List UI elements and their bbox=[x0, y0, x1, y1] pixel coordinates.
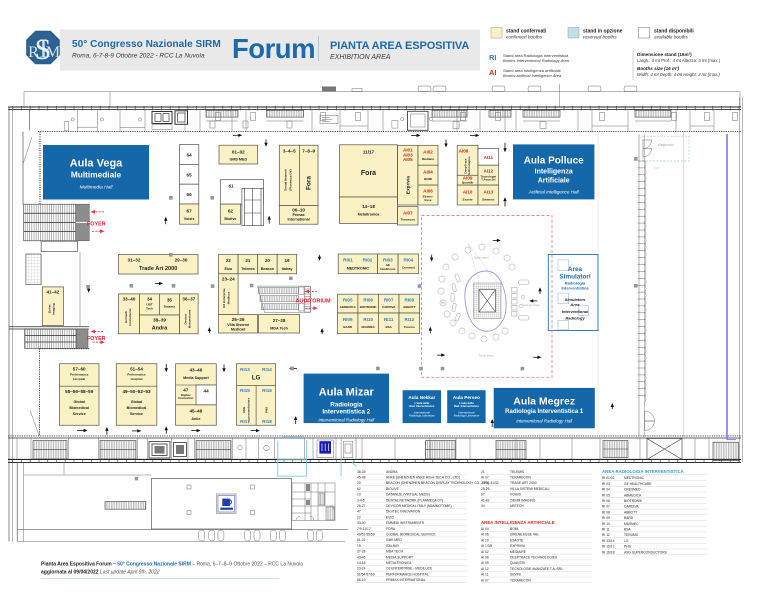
svg-text:FORA: FORA bbox=[386, 527, 396, 531]
svg-text:Biomedical: Biomedical bbox=[127, 406, 147, 410]
svg-text:BSA: BSA bbox=[624, 528, 631, 532]
svg-text:Artificial Intelligence Hall: Artificial Intelligence Hall bbox=[528, 190, 580, 195]
svg-text:DATAWIZE (VIRTUAL MEDS): DATAWIZE (VIRTUAL MEDS) bbox=[386, 493, 430, 497]
svg-text:Cresmed: Cresmed bbox=[402, 266, 415, 270]
svg-text:Area: Area bbox=[568, 266, 583, 273]
svg-text:62: 62 bbox=[357, 487, 361, 491]
svg-text:RI06: RI06 bbox=[363, 298, 373, 303]
svg-text:Esaote: Esaote bbox=[463, 198, 473, 202]
svg-text:Biomedical: Biomedical bbox=[69, 406, 89, 410]
svg-text:AI12: AI12 bbox=[483, 169, 493, 174]
svg-text:Booths size (16 m²): Booths size (16 m²) bbox=[637, 66, 680, 71]
svg-text:Booths Interventional Radiolog: Booths Interventional Radiology Area bbox=[503, 58, 570, 63]
svg-text:PHS: PHS bbox=[624, 545, 632, 549]
svg-text:Metaltronica: Metaltronica bbox=[358, 213, 381, 217]
svg-text:RI15: RI15 bbox=[240, 388, 250, 393]
svg-text:14-18: 14-18 bbox=[357, 561, 366, 565]
svg-text:AI 06: AI 06 bbox=[481, 533, 489, 537]
svg-text:EIRENE ESSE VAL: EIRENE ESSE VAL bbox=[510, 533, 539, 537]
svg-text:57–60: 57–60 bbox=[73, 367, 86, 372]
svg-text:45-48: 45-48 bbox=[357, 476, 366, 480]
svg-text:RI02: RI02 bbox=[363, 258, 373, 263]
svg-text:29/30-31/32: 29/30-31/32 bbox=[481, 481, 499, 485]
svg-text:(Planmeca OY): (Planmeca OY) bbox=[289, 169, 293, 190]
svg-text:3-4-5: 3-4-5 bbox=[357, 498, 365, 502]
svg-text:RI 01/02: RI 01/02 bbox=[602, 476, 615, 480]
svg-text:62: 62 bbox=[228, 209, 234, 214]
svg-text:PHS: PHS bbox=[265, 407, 269, 413]
svg-text:RI 09: RI 09 bbox=[602, 516, 610, 520]
svg-text:AI 11: AI 11 bbox=[481, 573, 489, 577]
svg-text:Media Support: Media Support bbox=[183, 376, 209, 380]
svg-text:Global: Global bbox=[73, 400, 84, 404]
svg-text:ZIEHM IMAGING: ZIEHM IMAGING bbox=[510, 498, 536, 502]
svg-text:available booths: available booths bbox=[654, 35, 689, 40]
svg-text:22: 22 bbox=[226, 258, 232, 263]
svg-text:26-27: 26-27 bbox=[357, 504, 366, 508]
svg-text:31–32: 31–32 bbox=[128, 258, 141, 263]
svg-text:MASMEC: MASMEC bbox=[362, 325, 376, 329]
svg-text:Andra: Andra bbox=[152, 326, 169, 332]
svg-text:49–50–52–53: 49–50–52–53 bbox=[122, 389, 151, 394]
svg-text:MEDTRONIC: MEDTRONIC bbox=[624, 476, 645, 480]
svg-text:METALTRONICA: METALTRONICA bbox=[386, 561, 412, 565]
svg-text:AI 10: AI 10 bbox=[481, 538, 489, 542]
svg-text:TERARECON: TERARECON bbox=[510, 578, 531, 582]
svg-text:Bar: Bar bbox=[441, 301, 446, 305]
svg-text:Healthcare: Healthcare bbox=[380, 267, 396, 271]
svg-text:Width: 4 mt Depth: 4 mt He: Width: 4 mt Depth: 4 mt Height: 3 mt (ma… bbox=[637, 72, 720, 77]
svg-text:ASG: ASG bbox=[242, 406, 246, 413]
svg-text:RI 16/18: RI 16/18 bbox=[602, 550, 615, 554]
svg-text:TRADE ART 2000: TRADE ART 2000 bbox=[510, 481, 537, 485]
svg-text:Fora: Fora bbox=[361, 170, 376, 177]
svg-text:reserved booths: reserved booths bbox=[583, 35, 617, 40]
svg-text:Artificiale: Artificiale bbox=[538, 178, 570, 185]
svg-text:AI 08: AI 08 bbox=[481, 556, 489, 560]
svg-text:Anke: Anke bbox=[191, 417, 200, 421]
svg-text:Aula Megrez: Aula Megrez bbox=[513, 396, 575, 408]
svg-text:Villa Sistemi: Villa Sistemi bbox=[227, 323, 249, 327]
svg-text:RI09: RI09 bbox=[343, 317, 353, 322]
svg-text:Instruments: Instruments bbox=[128, 308, 132, 326]
svg-text:RI18: RI18 bbox=[262, 419, 272, 424]
svg-text:33–40: 33–40 bbox=[123, 297, 136, 302]
svg-text:Mediaire: Mediaire bbox=[422, 157, 435, 161]
svg-text:Pianta Area Espositiva Forum –: Pianta Area Espositiva Forum – 50° Congr… bbox=[41, 562, 303, 568]
svg-text:Aula Nekkar: Aula Nekkar bbox=[408, 395, 435, 400]
svg-text:Rad. Interventistica: Rad. Interventistica bbox=[454, 404, 479, 408]
svg-text:Fora: Fora bbox=[306, 176, 313, 190]
svg-text:DEEPTRACE TECHNOLOGIES: DEEPTRACE TECHNOLOGIES bbox=[510, 556, 558, 560]
svg-text:EXHIBITION AREA: EXHIBITION AREA bbox=[330, 54, 391, 61]
svg-text:RI 04: RI 04 bbox=[602, 488, 610, 492]
svg-text:41-42: 41-42 bbox=[481, 498, 490, 502]
svg-text:618: 618 bbox=[654, 166, 659, 170]
svg-text:AI 09: AI 09 bbox=[481, 561, 489, 565]
svg-text:RI 03: RI 03 bbox=[602, 482, 610, 486]
svg-text:Multimedia Hall: Multimedia Hall bbox=[80, 185, 114, 191]
svg-text:MDA TECH: MDA TECH bbox=[386, 550, 404, 554]
svg-text:AI: AI bbox=[489, 68, 497, 77]
svg-text:7/9-11/17: 7/9-11/17 bbox=[357, 527, 371, 531]
svg-text:BEACON (SHENZHEN BEACON DISPLA: BEACON (SHENZHEN BEACON DISPLAY TECHNOLO… bbox=[386, 481, 489, 485]
svg-text:BARD: BARD bbox=[624, 516, 634, 520]
svg-text:3–4–5: 3–4–5 bbox=[283, 149, 296, 154]
svg-text:AI 02: AI 02 bbox=[481, 550, 489, 554]
svg-text:34: 34 bbox=[147, 297, 153, 302]
svg-text:55–56–58–59: 55–56–58–59 bbox=[65, 389, 94, 394]
svg-text:RI 13/14: RI 13/14 bbox=[602, 539, 615, 543]
svg-text:43-46: 43-46 bbox=[357, 555, 366, 559]
svg-text:Lounge Area: Lounge Area bbox=[523, 303, 540, 307]
svg-text:EMMEDI INSTRUMENTS: EMMEDI INSTRUMENTS bbox=[386, 521, 425, 525]
svg-text:EXPRIVIA: EXPRIVIA bbox=[510, 544, 526, 548]
svg-text:CARDIVA: CARDIVA bbox=[382, 305, 396, 309]
svg-text:RI11: RI11 bbox=[384, 317, 394, 322]
svg-text:51–54: 51–54 bbox=[130, 367, 143, 372]
svg-text:BARD: BARD bbox=[343, 325, 352, 329]
svg-text:43–46: 43–46 bbox=[190, 368, 203, 373]
svg-text:VOISIS: VOISIS bbox=[510, 493, 522, 497]
svg-text:AI 12: AI 12 bbox=[481, 567, 489, 571]
svg-text:TELEMIS: TELEMIS bbox=[510, 470, 525, 474]
svg-text:Mammotome: Mammotome bbox=[187, 309, 191, 328]
svg-text:RI12: RI12 bbox=[404, 317, 414, 322]
svg-text:Tavoli bassi: Tavoli bassi bbox=[479, 354, 494, 358]
svg-text:25-26: 25-26 bbox=[481, 487, 490, 491]
svg-text:Technologies: Technologies bbox=[467, 156, 471, 175]
svg-text:GLOBAL BIOMEDICAL SERVICE: GLOBAL BIOMEDICAL SERVICE bbox=[386, 533, 436, 537]
svg-text:Datawiz: Datawiz bbox=[164, 305, 176, 309]
svg-text:RI 06: RI 06 bbox=[602, 499, 610, 503]
svg-text:38-39: 38-39 bbox=[357, 470, 366, 474]
svg-text:01-02: 01-02 bbox=[357, 538, 366, 542]
svg-text:DEVICOR MEDICAL ITALY (MAMMOTO: DEVICOR MEDICAL ITALY (MAMMOTOME) bbox=[386, 504, 452, 508]
svg-text:65: 65 bbox=[187, 172, 193, 177]
svg-text:CARDIVA: CARDIVA bbox=[624, 505, 639, 509]
svg-text:TECNOLOGIE AVANZATE T.A. SRL: TECNOLOGIE AVANZATE T.A. SRL bbox=[510, 567, 563, 571]
svg-text:21: 21 bbox=[245, 258, 251, 263]
svg-text:Largh.: 4 mt Prof.: 4 mt Al: Largh.: 4 mt Prof.: 4 mt Altezza: 3 mt (… bbox=[637, 58, 721, 63]
svg-text:Multimediale: Multimediale bbox=[71, 170, 122, 180]
svg-text:RI16: RI16 bbox=[262, 388, 272, 393]
svg-text:AI11: AI11 bbox=[484, 155, 494, 160]
svg-text:20: 20 bbox=[265, 258, 271, 263]
svg-text:01–02: 01–02 bbox=[232, 150, 245, 155]
svg-text:66: 66 bbox=[187, 192, 193, 197]
svg-text:GE HEALTHCARE: GE HEALTHCARE bbox=[624, 482, 652, 486]
svg-text:AI04: AI04 bbox=[423, 170, 433, 175]
svg-text:Tech: Tech bbox=[146, 307, 153, 311]
svg-text:06–10: 06–10 bbox=[292, 208, 305, 213]
svg-text:64: 64 bbox=[187, 153, 193, 158]
svg-text:Radiology Laboratory: Radiology Laboratory bbox=[454, 414, 480, 418]
svg-text:19: 19 bbox=[284, 258, 290, 263]
svg-text:14–18: 14–18 bbox=[362, 204, 375, 209]
svg-text:21: 21 bbox=[481, 470, 485, 474]
svg-text:Aula Polluce: Aula Polluce bbox=[524, 156, 584, 167]
svg-text:DENTAL NETWORK (PLANMECA OY): DENTAL NETWORK (PLANMECA OY) bbox=[386, 498, 443, 502]
svg-text:47: 47 bbox=[183, 388, 189, 393]
svg-text:27–28: 27–28 bbox=[273, 318, 286, 323]
svg-text:RI08: RI08 bbox=[404, 298, 414, 303]
svg-text:AI07: AI07 bbox=[403, 211, 413, 216]
svg-text:RI17: RI17 bbox=[240, 419, 250, 424]
svg-text:AI08: AI08 bbox=[459, 149, 469, 154]
svg-text:BIOLIVE: BIOLIVE bbox=[386, 487, 400, 491]
svg-text:O3 ENTERPRISE - MEDILUCE: O3 ENTERPRISE - MEDILUCE bbox=[386, 567, 433, 571]
svg-text:Radiology Laboratory: Radiology Laboratory bbox=[409, 414, 435, 418]
svg-text:DIGITEC INNOVATION: DIGITEC INNOVATION bbox=[386, 510, 421, 514]
svg-text:RI 10: RI 10 bbox=[602, 522, 610, 526]
svg-text:RI13: RI13 bbox=[240, 367, 250, 372]
svg-text:Area: Area bbox=[570, 302, 581, 307]
svg-text:27-28: 27-28 bbox=[357, 550, 366, 554]
svg-text:Mediluce: Mediluce bbox=[227, 291, 231, 304]
svg-text:Hospital: Hospital bbox=[73, 377, 85, 381]
svg-text:41–42: 41–42 bbox=[47, 290, 60, 295]
svg-text:AUDITORIUM: AUDITORIUM bbox=[296, 298, 331, 304]
svg-text:Booths Artificial Intelligence: Booths Artificial Intelligence Area bbox=[503, 73, 562, 78]
svg-text:ABMEDICA: ABMEDICA bbox=[624, 493, 642, 497]
svg-text:RI10: RI10 bbox=[363, 317, 373, 322]
svg-text:RI 11: RI 11 bbox=[602, 528, 610, 532]
svg-text:BIOTRONIK: BIOTRONIK bbox=[360, 305, 378, 309]
svg-text:RI 05: RI 05 bbox=[602, 493, 610, 497]
svg-text:Primax: Primax bbox=[292, 213, 305, 217]
svg-text:AI 04: AI 04 bbox=[481, 527, 489, 531]
svg-text:10: 10 bbox=[357, 493, 361, 497]
svg-text:RI14: RI14 bbox=[262, 367, 272, 372]
svg-text:Medicali: Medicali bbox=[231, 328, 246, 332]
svg-text:ITALRAY: ITALRAY bbox=[386, 544, 400, 548]
svg-text:22: 22 bbox=[357, 515, 361, 519]
svg-text:AREA RADIOLOGIA INTERVENTISTIC: AREA RADIOLOGIA INTERVENTISTICA bbox=[602, 469, 685, 474]
svg-text:Global: Global bbox=[131, 400, 142, 404]
svg-text:confirmed booths: confirmed booths bbox=[506, 35, 543, 40]
svg-text:44: 44 bbox=[204, 389, 210, 394]
svg-text:Tavoli bassi: Tavoli bassi bbox=[474, 256, 489, 260]
svg-text:Interventistica: Interventistica bbox=[561, 285, 589, 290]
svg-text:06-10: 06-10 bbox=[357, 578, 366, 582]
svg-text:Interventional Radiology Hall: Interventional Radiology Hall bbox=[516, 419, 573, 424]
svg-text:CRESMED: CRESMED bbox=[624, 488, 641, 492]
svg-text:GMS MED: GMS MED bbox=[229, 158, 247, 162]
svg-text:FOYER: FOYER bbox=[87, 336, 106, 342]
svg-text:29–30: 29–30 bbox=[175, 258, 188, 263]
svg-text:RI 15/17: RI 15/17 bbox=[602, 545, 615, 549]
svg-text:aggiornata al 09/04/2022 Last: aggiornata al 09/04/2022 Last update Apr… bbox=[41, 570, 160, 576]
svg-text:RI 12: RI 12 bbox=[602, 533, 610, 537]
svg-text:MASMEC: MASMEC bbox=[624, 522, 639, 526]
svg-text:ABBOTT: ABBOTT bbox=[403, 305, 416, 309]
svg-text:Terarecon: Terarecon bbox=[401, 218, 415, 222]
svg-text:AI10: AI10 bbox=[463, 190, 473, 195]
svg-text:ASG SUPERCONDUCTORS: ASG SUPERCONDUCTORS bbox=[624, 550, 668, 554]
svg-text:Terumo: Terumo bbox=[404, 325, 415, 329]
svg-text:7–8–9: 7–8–9 bbox=[302, 149, 315, 154]
svg-text:TERUMO: TERUMO bbox=[624, 533, 639, 537]
svg-text:47: 47 bbox=[357, 510, 361, 514]
svg-text:67: 67 bbox=[187, 209, 193, 214]
svg-text:67: 67 bbox=[481, 493, 485, 497]
svg-text:LG: LG bbox=[624, 539, 629, 543]
svg-text:RI01: RI01 bbox=[343, 258, 353, 263]
svg-text:RI 08: RI 08 bbox=[602, 510, 610, 514]
svg-text:BOMI: BOMI bbox=[424, 177, 432, 181]
svg-text:Interventional Radiology Hall: Interventional Radiology Hall bbox=[318, 418, 375, 423]
svg-text:51/54-57/60: 51/54-57/60 bbox=[357, 572, 375, 576]
svg-text:Italray: Italray bbox=[282, 267, 294, 271]
svg-text:AI06: AI06 bbox=[423, 189, 433, 194]
svg-text:Service: Service bbox=[73, 412, 86, 416]
svg-text:AI 07: AI 07 bbox=[481, 578, 489, 582]
svg-text:S: S bbox=[35, 33, 52, 66]
svg-text:Roma, 6-7-8-9 Ottobre 2022 - R: Roma, 6-7-8-9 Ottobre 2022 - RCC La Nuvo… bbox=[72, 53, 205, 60]
svg-text:RI04: RI04 bbox=[404, 258, 414, 263]
svg-text:19: 19 bbox=[357, 544, 361, 548]
svg-text:11/17: 11/17 bbox=[363, 150, 375, 155]
svg-text:RI 07: RI 07 bbox=[602, 505, 610, 509]
svg-text:Telemis: Telemis bbox=[241, 267, 254, 271]
svg-text:EIZO: EIZO bbox=[386, 515, 394, 519]
svg-text:23-24: 23-24 bbox=[357, 567, 366, 571]
svg-text:International: International bbox=[288, 218, 310, 222]
svg-text:35: 35 bbox=[167, 298, 173, 303]
svg-text:50° Congresso Nazionale SIRM: 50° Congresso Nazionale SIRM bbox=[72, 39, 221, 50]
svg-text:Esse: Esse bbox=[424, 198, 431, 202]
svg-text:Forum: Forum bbox=[232, 33, 315, 64]
svg-text:MEDTRONIC: MEDTRONIC bbox=[347, 267, 370, 271]
svg-text:49/51-55/59: 49/51-55/59 bbox=[357, 533, 375, 537]
svg-text:GMS MED: GMS MED bbox=[386, 538, 402, 542]
svg-text:20: 20 bbox=[357, 481, 361, 485]
svg-text:Radiologia Interventistica 1: Radiologia Interventistica 1 bbox=[505, 409, 584, 415]
svg-text:PRIMAX INTERNATIONAL: PRIMAX INTERNATIONAL bbox=[386, 578, 426, 582]
svg-text:RI05: RI05 bbox=[343, 298, 353, 303]
svg-text:Eizo: Eizo bbox=[225, 267, 233, 271]
svg-text:34: 34 bbox=[481, 504, 485, 508]
svg-text:LG: LG bbox=[252, 376, 261, 382]
svg-text:45–48: 45–48 bbox=[190, 409, 203, 414]
svg-text:Exprivia: Exprivia bbox=[406, 176, 411, 194]
svg-text:T.Avan Srl: T.Avan Srl bbox=[481, 178, 496, 182]
svg-text:ABMEDICA: ABMEDICA bbox=[340, 305, 357, 309]
svg-text:Rad. Interventistica: Rad. Interventistica bbox=[409, 404, 434, 408]
svg-text:33-40: 33-40 bbox=[357, 521, 366, 525]
svg-text:Intelligenza: Intelligenza bbox=[535, 169, 573, 176]
svg-text:PERFORMANCE HOSPITAL: PERFORMANCE HOSPITAL bbox=[386, 572, 429, 576]
svg-text:Aula Perseo: Aula Perseo bbox=[453, 395, 480, 400]
svg-text:MDA Tech: MDA Tech bbox=[270, 327, 288, 331]
svg-text:Radiology: Radiology bbox=[565, 316, 585, 321]
svg-text:RI03: RI03 bbox=[383, 258, 393, 263]
svg-text:23–24: 23–24 bbox=[222, 277, 235, 282]
svg-text:O3 Enterprise: O3 Enterprise bbox=[222, 288, 226, 308]
svg-text:Hospital: Hospital bbox=[131, 377, 143, 381]
svg-text:38–39: 38–39 bbox=[153, 318, 166, 323]
svg-text:Aula Vega: Aula Vega bbox=[70, 158, 123, 170]
svg-text:ABBOTT: ABBOTT bbox=[624, 510, 637, 514]
svg-text:Innovation: Innovation bbox=[178, 396, 193, 400]
svg-text:AI 1/3/5: AI 1/3/5 bbox=[481, 544, 493, 548]
svg-text:RI: RI bbox=[489, 53, 497, 62]
svg-text:Imaging: Imaging bbox=[52, 303, 56, 315]
svg-text:AI 07: AI 07 bbox=[481, 476, 489, 480]
svg-text:Beacon: Beacon bbox=[261, 267, 275, 271]
svg-text:Radiologia: Radiologia bbox=[330, 402, 363, 409]
svg-text:TERARECON: TERARECON bbox=[510, 476, 531, 480]
svg-text:Dimensione stand (16m²): Dimensione stand (16m²) bbox=[637, 52, 692, 57]
svg-text:MEDIA SUPPORT: MEDIA SUPPORT bbox=[386, 555, 413, 559]
svg-text:ANKE (SHENZHEN ANKE HIGH-TECH: ANKE (SHENZHEN ANKE HIGH-TECH CO., LTD) bbox=[386, 476, 460, 480]
svg-text:Magazzino: Magazzino bbox=[658, 143, 675, 147]
svg-text:Trade Art 2000: Trade Art 2000 bbox=[139, 266, 177, 272]
svg-text:AI02: AI02 bbox=[423, 150, 433, 155]
svg-text:BOMI: BOMI bbox=[510, 527, 519, 531]
svg-text:AI05: AI05 bbox=[403, 157, 413, 162]
svg-text:Voisis: Voisis bbox=[184, 217, 195, 221]
svg-text:Service: Service bbox=[130, 412, 143, 416]
svg-text:Quantib: Quantib bbox=[462, 181, 473, 185]
svg-text:QUANTIB: QUANTIB bbox=[510, 561, 525, 565]
svg-text:FOYER: FOYER bbox=[87, 222, 106, 228]
svg-text:BIOTRONIK: BIOTRONIK bbox=[624, 499, 643, 503]
svg-text:PIANTA AREA ESPOSITIVA: PIANTA AREA ESPOSITIVA bbox=[330, 40, 469, 52]
svg-text:Aula Mizar: Aula Mizar bbox=[319, 387, 375, 399]
svg-text:VILLA SISTEMI MEDICALI: VILLA SISTEMI MEDICALI bbox=[510, 487, 549, 491]
svg-text:61: 61 bbox=[228, 184, 234, 189]
svg-text:36–37: 36–37 bbox=[182, 297, 195, 302]
svg-text:Biolive: Biolive bbox=[224, 217, 236, 221]
svg-text:ESAOTE: ESAOTE bbox=[510, 538, 524, 542]
svg-text:25–26: 25–26 bbox=[232, 317, 245, 322]
svg-text:MEDIAIRE: MEDIAIRE bbox=[510, 550, 527, 554]
svg-text:AI13: AI13 bbox=[483, 190, 493, 195]
svg-text:ANDRA: ANDRA bbox=[386, 470, 398, 474]
svg-text:AREA INTELLIGENZA ARTIFICIALE: AREA INTELLIGENZA ARTIFICIALE bbox=[481, 520, 555, 525]
svg-text:Interventional: Interventional bbox=[562, 309, 589, 314]
svg-text:Interventistica 2: Interventistica 2 bbox=[322, 409, 370, 416]
svg-text:BSA: BSA bbox=[386, 325, 393, 329]
svg-text:SEVINI: SEVINI bbox=[510, 573, 521, 577]
svg-text:RI07: RI07 bbox=[384, 298, 394, 303]
svg-text:UBTECH: UBTECH bbox=[510, 504, 524, 508]
svg-text:Siemens: Siemens bbox=[482, 198, 495, 202]
svg-text:Dental Network: Dental Network bbox=[284, 169, 288, 191]
